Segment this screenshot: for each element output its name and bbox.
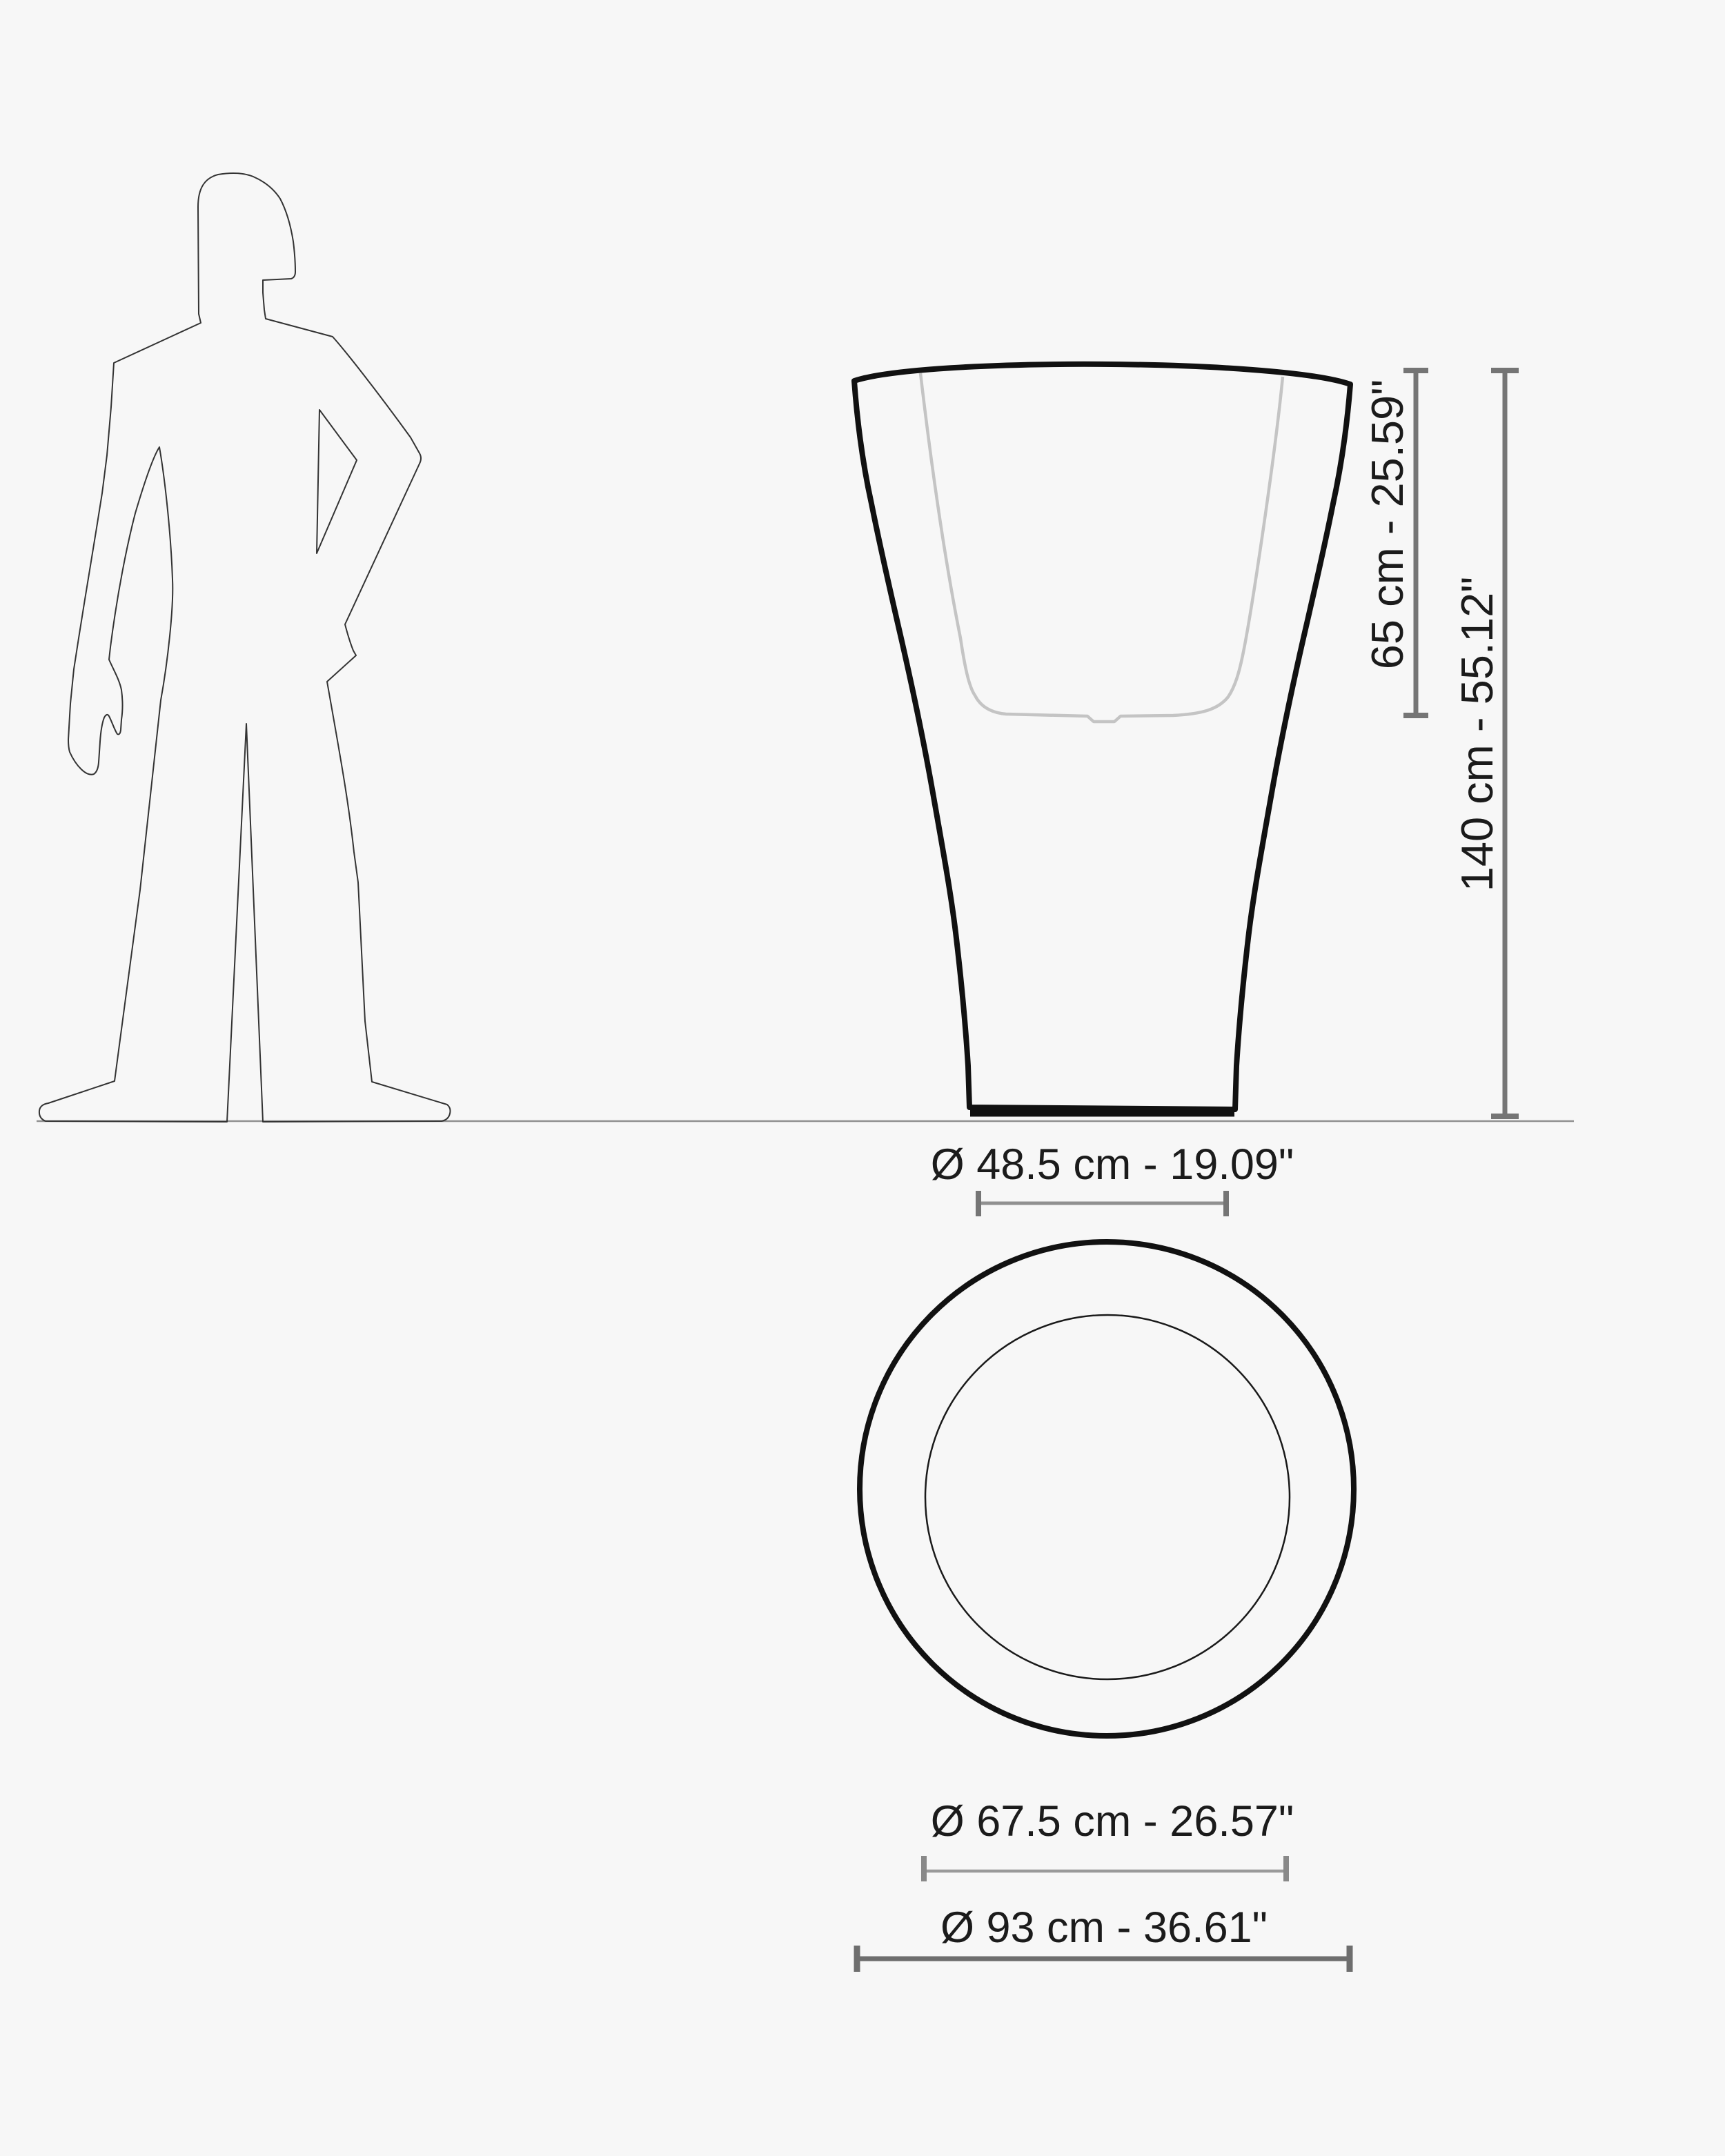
svg-text:Ø 48.5 cm - 19.09": Ø 48.5 cm - 19.09" xyxy=(931,1140,1294,1189)
svg-text:Ø 67.5 cm - 26.57": Ø 67.5 cm - 26.57" xyxy=(931,1797,1294,1846)
svg-text:65 cm - 25.59": 65 cm - 25.59" xyxy=(1362,379,1412,670)
svg-text:140 cm - 55.12": 140 cm - 55.12" xyxy=(1452,577,1502,892)
svg-text:Ø 93 cm - 36.61": Ø 93 cm - 36.61" xyxy=(940,1903,1268,1952)
